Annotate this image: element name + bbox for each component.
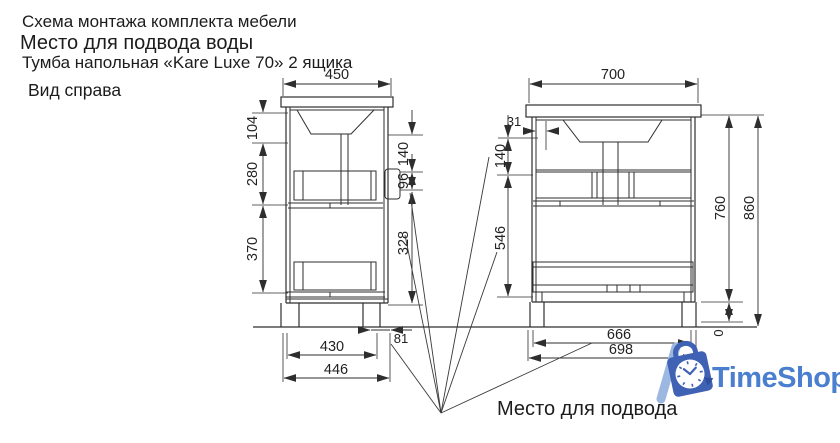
dim-front-width: 700 — [601, 67, 625, 83]
water-supply-note: Место для подвода — [497, 398, 678, 420]
title-block: Схема монтажа комплекта мебели Место для… — [20, 12, 353, 100]
front-view-cabinet — [526, 105, 701, 327]
dim-side-81: 81 — [394, 331, 408, 346]
dim-front-31: 31 — [507, 114, 521, 129]
title-line-3: Тумба напольная «Kare Luxe 70» 2 ящика — [22, 53, 353, 72]
dim-front-546: 546 — [493, 226, 509, 250]
front-view-dimensions: 700 31 140 546 760 860 0 66 — [493, 67, 764, 361]
title-line-1: Схема монтажа комплекта мебели — [22, 12, 297, 31]
dim-side-96: 96 — [396, 173, 412, 189]
side-upper-drawer — [294, 171, 376, 200]
side-sink-basin — [297, 110, 374, 134]
dim-front-860: 860 — [742, 196, 758, 220]
dim-front-140: 140 — [493, 144, 509, 168]
side-countertop — [281, 97, 393, 107]
view-label: Вид справа — [28, 80, 121, 100]
dim-front-666: 666 — [607, 327, 631, 343]
timeshop-logo: TimeShop — [661, 339, 840, 399]
dim-side-280: 280 — [245, 162, 261, 186]
dim-front-698: 698 — [609, 342, 633, 358]
dim-side-140: 140 — [396, 142, 412, 166]
dim-side-370: 370 — [245, 237, 261, 261]
title-line-2: Место для подвода воды — [20, 32, 253, 54]
logo-text: TimeShop — [712, 362, 840, 394]
front-drawer-band — [536, 172, 691, 198]
dim-side-104: 104 — [245, 116, 261, 140]
dim-side-446: 446 — [324, 362, 348, 378]
dim-side-depth: 450 — [325, 67, 349, 83]
dim-side-430: 430 — [320, 339, 344, 355]
side-view-dimensions: 450 104 280 370 140 96 328 81 — [245, 67, 423, 382]
dim-side-328: 328 — [396, 231, 412, 255]
dim-front-floor-0: 0 — [711, 329, 726, 336]
assembly-drawing-page: Схема монтажа комплекта мебели Место для… — [0, 0, 840, 443]
front-countertop — [526, 105, 701, 117]
side-view-cabinet — [281, 97, 400, 327]
side-lower-drawer — [294, 262, 376, 290]
front-sink-basin — [563, 120, 662, 142]
dim-front-760: 760 — [713, 196, 729, 220]
technical-drawing-canvas: Схема монтажа комплекта мебели Место для… — [0, 0, 840, 443]
